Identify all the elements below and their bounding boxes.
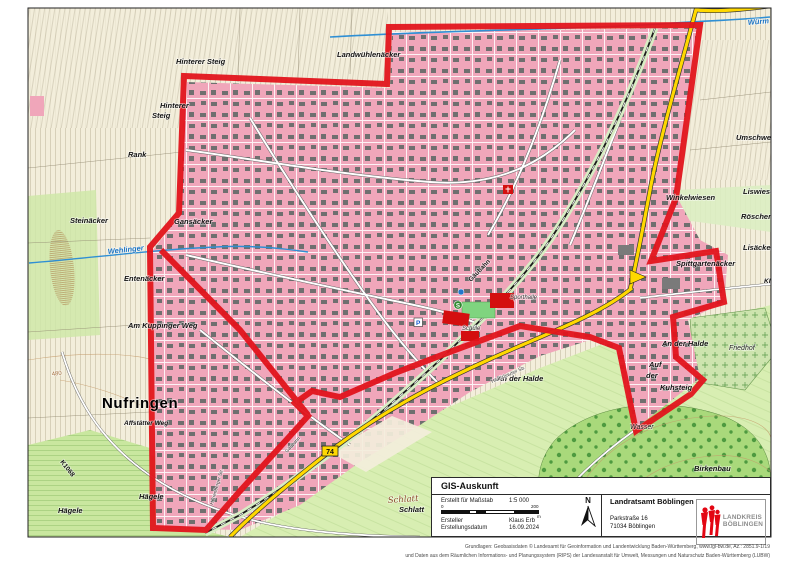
attribution-line-1: Grundlagen: Geobasisdaten © Landesamt fü… [210, 543, 770, 552]
scale-bar-end: 200 [531, 504, 539, 509]
office-city: 71034 Böblingen [610, 523, 698, 531]
route-badge: 74 [322, 446, 338, 456]
map-label: Auf [648, 360, 663, 369]
north-arrow: N [568, 496, 608, 532]
landkreis-logo: LANDKREIS BÖBLINGEN [696, 499, 766, 545]
office-street: Parkstraße 16 [610, 515, 698, 523]
creator-label: Ersteller [441, 518, 509, 524]
map-label: Spittgartenäcker [676, 259, 736, 268]
map-label: Steinäcker [70, 216, 109, 225]
map-label: Hägele [58, 506, 83, 515]
map-label: Hinterer Steig [176, 57, 226, 66]
map-label: Hinterer [160, 101, 190, 110]
map-content: S P 74 Hinterer SteigHintererSteigRankSt… [28, 6, 798, 542]
map-label: Birkenbau [694, 464, 731, 473]
map-label: Landwühlenäcker [337, 50, 401, 59]
map-label: Steig [152, 111, 171, 120]
map-label: Sporthalle [510, 295, 538, 301]
info-point-icon [458, 289, 464, 295]
church-building [503, 185, 513, 194]
urban-patch-west [30, 96, 44, 116]
date-label: Erstellungsdatum [441, 525, 509, 531]
svg-text:P: P [416, 320, 421, 327]
map-label: Lisäcker [743, 243, 775, 252]
gis-info-box: GIS-Auskunft Erstellt für Maßstab 1:5 00… [431, 477, 771, 537]
map-label: Winkelwiesen [666, 193, 716, 202]
map-label: Nufringen [102, 395, 178, 412]
map-label: Rank [128, 150, 147, 159]
gis-export-page: S P 74 Hinterer SteigHintererSteigRankSt… [0, 0, 800, 566]
map-label: Gansäcker [174, 217, 213, 226]
map-label: Entenäcker [124, 274, 166, 283]
info-box-title: GIS-Auskunft [432, 478, 770, 495]
parking-icon: P [414, 318, 423, 327]
north-label: N [568, 496, 608, 505]
north-arrow-icon [580, 505, 596, 527]
attribution-line-2: und Daten aus dem Räumlichen Information… [210, 552, 770, 561]
logo-line2: BÖBLINGEN [723, 522, 763, 529]
office-name: Landratsamt Böblingen [610, 497, 698, 506]
landkreis-logo-icon [699, 505, 721, 539]
map-label: An der Halde [661, 339, 708, 348]
map-label: Schule [462, 326, 481, 332]
map-label: Hägele [139, 492, 164, 501]
scale-label: Erstellt für Maßstab [441, 498, 509, 504]
map-label: Schlatt [399, 505, 425, 514]
sbahn-station-icon: S [454, 301, 462, 310]
map-label: Wasser [630, 424, 654, 431]
map-label: Würm [747, 16, 769, 27]
scale-bar-unit: m [537, 514, 541, 519]
map-label: Affstätter Weg [123, 420, 168, 427]
map-label: Kuhsteig [660, 383, 693, 392]
scale-bar-start: 0 [441, 504, 444, 509]
attribution-footer: Grundlagen: Geobasisdaten © Landesamt fü… [210, 543, 770, 561]
map-label: Friedhof [729, 345, 756, 352]
map-label: Am Kuppinger Weg [127, 321, 198, 330]
svg-text:S: S [456, 302, 460, 309]
svg-text:74: 74 [326, 449, 334, 456]
scale-bar: 0 200 m [441, 507, 541, 516]
map-label: der [646, 371, 659, 380]
